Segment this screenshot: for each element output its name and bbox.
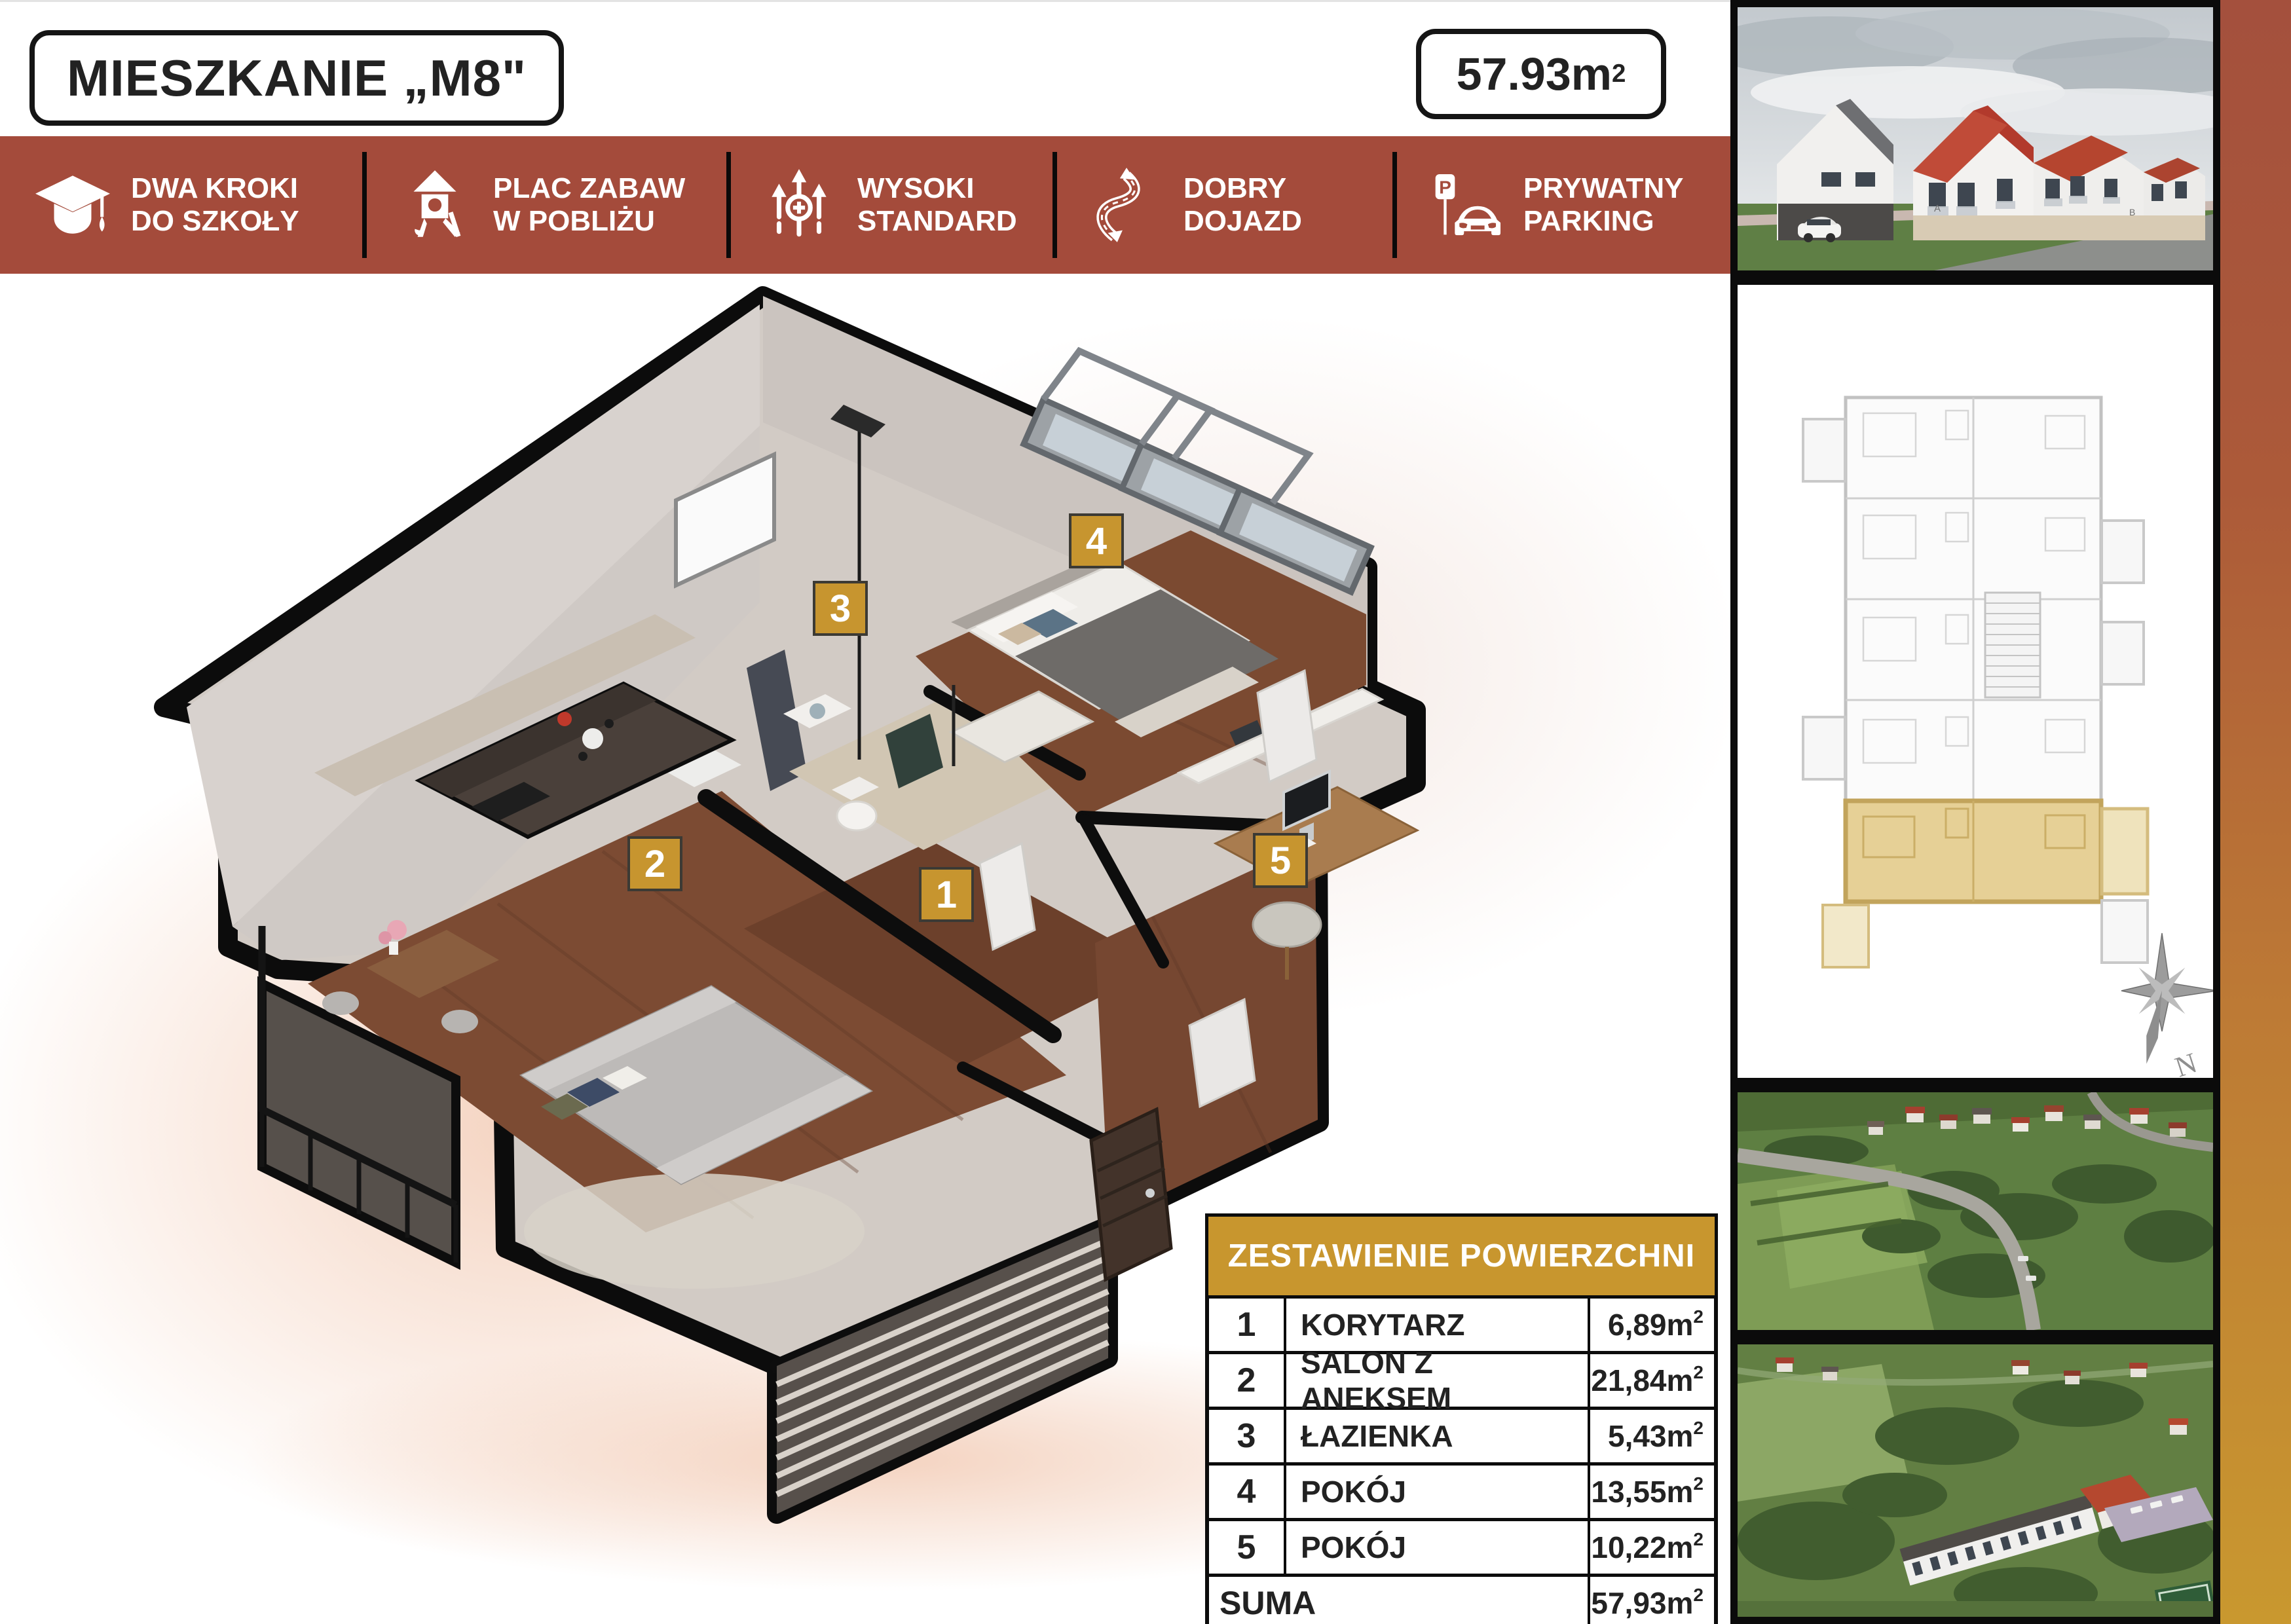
table-total-row: SUMA 57,93m2 (1209, 1574, 1714, 1624)
parking-icon: P (1425, 156, 1505, 254)
total-area-value: 57.93m (1457, 48, 1612, 100)
table-row: 2 SALON Z ANEKSEM 21,84m2 (1209, 1351, 1714, 1407)
table-row: 3 ŁAZIENKA 5,43m2 (1209, 1407, 1714, 1462)
svg-text:P: P (1439, 177, 1451, 198)
room-marker-2: 2 (627, 836, 682, 891)
area-table-title: ZESTAWIENIE POWIERZCHNI (1205, 1213, 1718, 1299)
table-row: 4 POKÓJ 13,55m2 (1209, 1462, 1714, 1518)
feature-banner: DWA KROKIDO SZKOŁY PLAC ZABAWW POBLIŻU (0, 136, 1734, 274)
table-row: 1 KORYTARZ 6,89m2 (1209, 1299, 1714, 1351)
page-title-text: MIESZKANIE „M8" (67, 48, 527, 108)
aerial-photo-2 (1730, 1337, 2220, 1624)
building-letter-b: B (2129, 207, 2135, 217)
room-marker-3: 3 (813, 581, 868, 636)
feature-parking: P PRYWATNYPARKING (1392, 136, 1734, 274)
feature-standard-label: WYSOKISTANDARD (857, 172, 1017, 237)
feature-school: DWA KROKIDO SZKOŁY (0, 136, 362, 274)
feature-school-label: DWA KROKIDO SZKOŁY (131, 172, 299, 237)
feature-playground: PLAC ZABAWW POBLIŻU (362, 136, 726, 274)
decorative-gradient-strip (2220, 0, 2291, 1624)
aerial-photo-1 (1730, 1085, 2220, 1337)
building-photo: A B (1730, 0, 2220, 278)
room-marker-4: 4 (1069, 513, 1124, 568)
table-row: 5 POKÓJ 10,22m2 (1209, 1518, 1714, 1574)
playground-icon (395, 156, 475, 254)
total-area-badge: 57.93m2 (1416, 29, 1666, 119)
feature-standard: WYSOKISTANDARD (726, 136, 1052, 274)
quality-arrows-icon (759, 156, 839, 254)
room-marker-1: 1 (919, 867, 974, 922)
page-title: MIESZKANIE „M8" (29, 30, 564, 126)
building-storey-plan: N (1730, 278, 2220, 1085)
area-summary-table: ZESTAWIENIE POWIERZCHNI 1 KORYTARZ 6,89m… (1205, 1213, 1718, 1624)
brochure-page: MIESZKANIE „M8" 57.93m2 DWA KROKIDO SZKO… (0, 0, 2291, 1624)
feature-access: DOBRYDOJAZD (1052, 136, 1392, 274)
entry-door (1091, 1109, 1171, 1280)
feature-playground-label: PLAC ZABAWW POBLIŻU (493, 172, 685, 237)
building-letter-a: A (1934, 203, 1941, 214)
graduation-cap-icon (33, 156, 113, 254)
road-icon (1085, 156, 1165, 254)
room-marker-5: 5 (1253, 833, 1308, 888)
feature-parking-label: PRYWATNYPARKING (1523, 172, 1683, 237)
feature-access-label: DOBRYDOJAZD (1183, 172, 1302, 237)
